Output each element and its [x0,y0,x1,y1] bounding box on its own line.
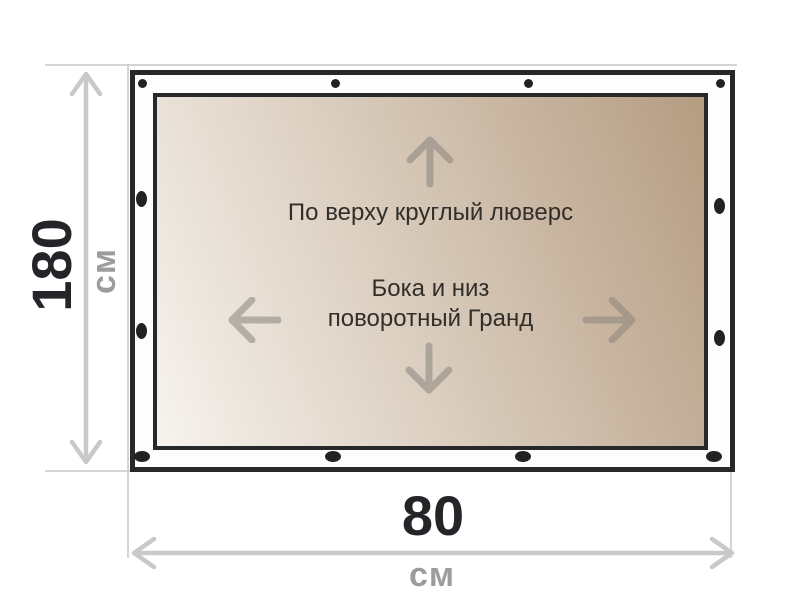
grommet-dot-icon [524,79,533,88]
grommet-dot-icon [714,330,725,346]
grommet-dot-icon [515,451,531,462]
bottom-extension-line [45,470,130,472]
grommet-dot-icon [325,451,341,462]
dimension-height-unit: см [87,211,121,331]
grommet-dot-icon [136,191,147,207]
banner-top-label: По верху круглый люверс [153,199,708,227]
dimension-width-unit: см [352,558,512,592]
banner-center-label-line1: Бока и низ [153,275,708,303]
left-extension-line [127,64,129,558]
arrow-down-icon [397,340,461,400]
grommet-dot-icon [136,323,147,339]
grommet-dot-icon [706,451,722,462]
grommet-dot-icon [331,79,340,88]
grommet-dot-icon [714,198,725,214]
grommet-dot-icon [134,451,150,462]
arrow-up-icon [398,130,462,190]
banner-dimension-diagram: 180 см 80 см По верху круглый люверс Бок… [0,0,800,600]
grommet-dot-icon [138,79,147,88]
grommet-dot-icon [716,79,725,88]
top-extension-line [45,64,737,66]
dimension-width-value: 80 [333,488,533,544]
dimension-height-value: 180 [24,165,80,365]
banner-center-label-line2: поворотный Гранд [153,305,708,333]
